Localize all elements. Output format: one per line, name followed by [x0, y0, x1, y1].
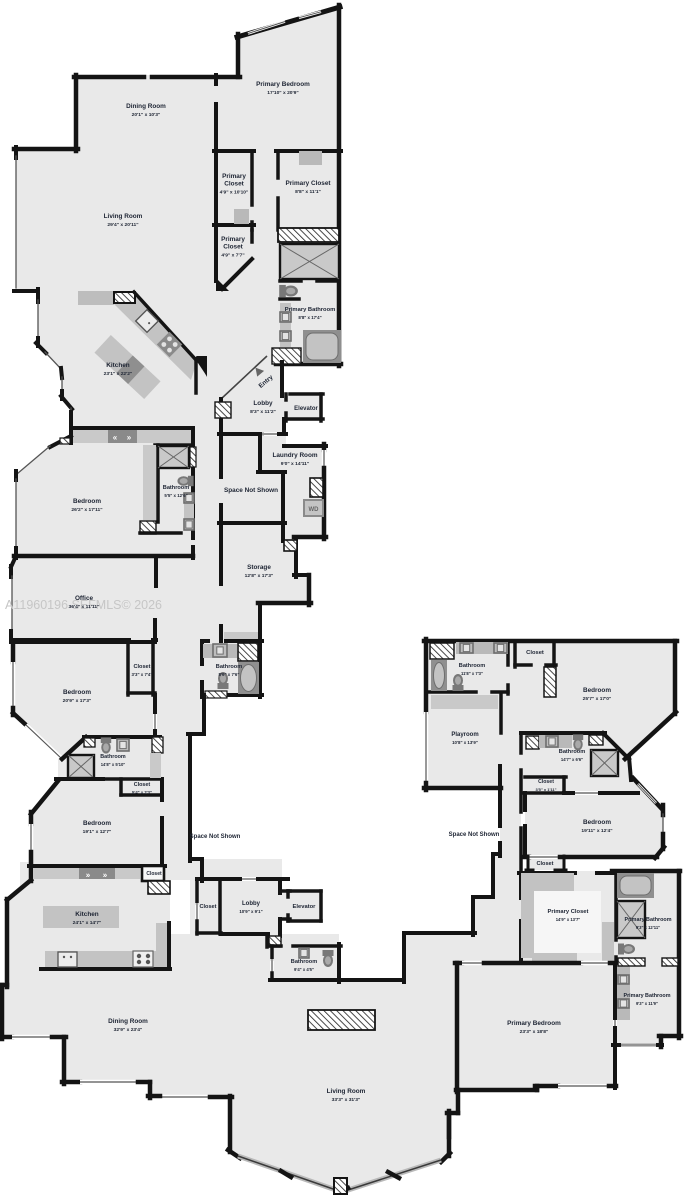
- svg-text:Closet: Closet: [224, 180, 244, 187]
- svg-text:Office: Office: [75, 595, 94, 602]
- svg-text:20'9" x 17'3": 20'9" x 17'3": [63, 698, 92, 704]
- svg-text:Living Room: Living Room: [327, 1088, 366, 1095]
- svg-text:Primary Closet: Primary Closet: [285, 180, 331, 187]
- svg-text:32'9" x 23'4": 32'9" x 23'4": [114, 1027, 143, 1033]
- svg-text:Primary Bedroom: Primary Bedroom: [256, 81, 310, 88]
- svg-text:Closet: Closet: [133, 664, 150, 670]
- svg-text:Space Not Shown: Space Not Shown: [449, 832, 500, 838]
- svg-text:12'8" x 17'3": 12'8" x 17'3": [245, 573, 274, 579]
- svg-text:Dining Room: Dining Room: [126, 103, 166, 110]
- svg-text:Bedroom: Bedroom: [583, 819, 611, 826]
- svg-text:Closet: Closet: [223, 243, 243, 250]
- svg-text:29'4" x 20'11": 29'4" x 20'11": [107, 222, 138, 228]
- svg-text:Primary Bathroom: Primary Bathroom: [285, 307, 336, 313]
- svg-text:Playroom: Playroom: [451, 732, 478, 738]
- svg-text:9'0" x 14'11": 9'0" x 14'11": [281, 461, 309, 467]
- svg-text:24'1" x 14'7": 24'1" x 14'7": [73, 920, 102, 926]
- svg-text:9'3" x 12'11": 9'3" x 12'11": [636, 925, 660, 930]
- svg-text:Bedroom: Bedroom: [83, 820, 111, 827]
- svg-text:8'3" x 11'2": 8'3" x 11'2": [250, 409, 276, 415]
- svg-text:36'4" x 11'11": 36'4" x 11'11": [69, 604, 100, 610]
- svg-text:«: «: [113, 433, 118, 442]
- svg-text:Lobby: Lobby: [253, 400, 273, 407]
- svg-text:3'5" x 1'11": 3'5" x 1'11": [535, 787, 556, 792]
- svg-text:Primary Bathroom: Primary Bathroom: [623, 993, 670, 999]
- svg-text:Lobby: Lobby: [242, 901, 261, 907]
- svg-text:33'3" x 31'3": 33'3" x 31'3": [332, 1097, 361, 1103]
- svg-text:8'6" x 7'6": 8'6" x 7'6": [219, 672, 240, 677]
- svg-text:Closet: Closet: [134, 782, 151, 788]
- svg-text:5'5" x 12'6": 5'5" x 12'6": [164, 493, 187, 498]
- svg-text:Primary Closet: Primary Closet: [548, 909, 589, 915]
- svg-text:Laundry Room: Laundry Room: [272, 452, 317, 459]
- svg-text:Primary: Primary: [221, 236, 245, 243]
- svg-text:Elevator: Elevator: [293, 904, 317, 910]
- svg-text:9'3" x 11'9": 9'3" x 11'9": [636, 1001, 658, 1006]
- svg-text:14'9" x 13'7": 14'9" x 13'7": [556, 917, 581, 922]
- svg-text:WD: WD: [309, 507, 320, 513]
- svg-text:Bedroom: Bedroom: [583, 687, 611, 694]
- svg-text:11'8" x 7'3": 11'8" x 7'3": [461, 671, 483, 676]
- svg-text:Space Not Shown: Space Not Shown: [224, 487, 278, 494]
- svg-text:14'7" x 6'6": 14'7" x 6'6": [561, 757, 583, 762]
- svg-text:Bathroom: Bathroom: [459, 663, 485, 669]
- svg-text:»: »: [103, 871, 108, 880]
- svg-text:17'10" x 20'9": 17'10" x 20'9": [267, 90, 298, 96]
- svg-text:Primary Bedroom: Primary Bedroom: [507, 1020, 561, 1027]
- svg-text:20'1" x 10'3": 20'1" x 10'3": [132, 112, 161, 118]
- svg-text:Living Room: Living Room: [104, 213, 143, 220]
- svg-text:Kitchen: Kitchen: [75, 911, 99, 918]
- svg-text:9'4" x 4'5": 9'4" x 4'5": [294, 967, 314, 972]
- svg-text:14'8" x 5'10": 14'8" x 5'10": [101, 762, 126, 767]
- svg-text:10'9" x 9'1": 10'9" x 9'1": [239, 909, 262, 914]
- svg-text:4'9" x 7'7": 4'9" x 7'7": [221, 252, 244, 258]
- svg-text:10'8" x 13'9": 10'8" x 13'9": [452, 740, 478, 745]
- svg-text:Closet: Closet: [538, 779, 554, 785]
- svg-text:Primary: Primary: [222, 173, 246, 180]
- svg-text:Closet: Closet: [536, 861, 553, 867]
- svg-text:Closet: Closet: [146, 871, 162, 877]
- svg-text:4'9" x 10'10": 4'9" x 10'10": [220, 189, 249, 195]
- svg-text:5'4" x 2'3": 5'4" x 2'3": [132, 790, 152, 795]
- svg-text:Space Not Shown: Space Not Shown: [190, 834, 241, 840]
- svg-text:Closet: Closet: [199, 904, 216, 910]
- svg-text:Elevator: Elevator: [294, 406, 318, 412]
- svg-text:19'1" x 12'7": 19'1" x 12'7": [83, 829, 112, 835]
- svg-text:3'3" x 7'4": 3'3" x 7'4": [132, 672, 153, 677]
- svg-text:8'8" x 17'4": 8'8" x 17'4": [298, 315, 321, 320]
- svg-text:Bathroom: Bathroom: [100, 754, 126, 760]
- svg-text:Bathroom: Bathroom: [163, 485, 189, 491]
- svg-text:»: »: [127, 433, 132, 442]
- svg-text:25'7" x 17'0": 25'7" x 17'0": [583, 696, 612, 702]
- svg-text:Bedroom: Bedroom: [63, 689, 91, 696]
- svg-text:Closet: Closet: [526, 650, 544, 656]
- svg-text:8'8" x 11'1": 8'8" x 11'1": [295, 189, 321, 195]
- svg-text:23'1" x 22'2": 23'1" x 22'2": [104, 371, 133, 377]
- svg-text:23'3" x 18'8": 23'3" x 18'8": [520, 1029, 549, 1035]
- svg-text:Bedroom: Bedroom: [73, 498, 101, 505]
- svg-text:Bathroom: Bathroom: [291, 959, 317, 965]
- svg-text:»: »: [86, 871, 91, 880]
- svg-text:Dining Room: Dining Room: [108, 1018, 148, 1025]
- svg-text:Bathroom: Bathroom: [559, 749, 585, 755]
- svg-text:19'11" x 12'4": 19'11" x 12'4": [581, 828, 612, 834]
- svg-text:Bathroom: Bathroom: [216, 664, 242, 670]
- svg-text:Primary Bathroom: Primary Bathroom: [624, 917, 671, 923]
- svg-text:Storage: Storage: [247, 564, 271, 571]
- svg-text:26'2" x 17'11": 26'2" x 17'11": [71, 507, 102, 513]
- svg-text:Kitchen: Kitchen: [106, 362, 130, 369]
